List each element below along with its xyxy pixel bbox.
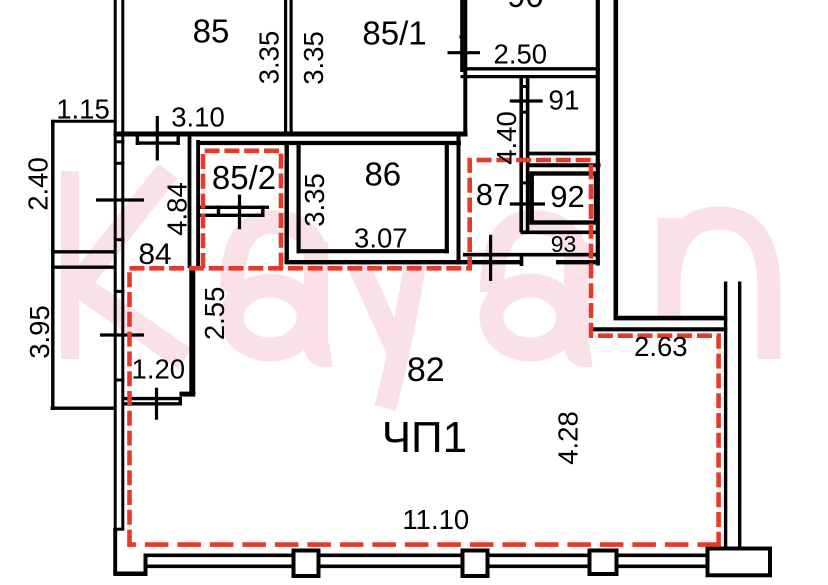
svg-text:84: 84 [138, 238, 171, 271]
svg-text:ЧП1: ЧП1 [382, 413, 467, 462]
svg-text:3.35: 3.35 [298, 31, 329, 85]
svg-text:3.10: 3.10 [171, 102, 225, 133]
svg-text:3.35: 3.35 [253, 31, 284, 85]
svg-text:2.40: 2.40 [22, 157, 53, 211]
svg-text:3.95: 3.95 [24, 305, 55, 359]
svg-text:3.35: 3.35 [299, 173, 330, 227]
svg-text:4.28: 4.28 [553, 411, 584, 465]
svg-text:2.55: 2.55 [199, 287, 230, 341]
svg-text:2.63: 2.63 [634, 331, 688, 362]
svg-text:4.84: 4.84 [162, 182, 193, 236]
svg-text:91: 91 [548, 85, 579, 116]
svg-text:85: 85 [193, 13, 230, 50]
svg-text:93: 93 [551, 231, 577, 257]
svg-text:2.50: 2.50 [494, 39, 548, 70]
svg-text:1.15: 1.15 [56, 93, 110, 124]
svg-text:1.20: 1.20 [132, 354, 186, 385]
svg-text:82: 82 [407, 351, 445, 389]
svg-text:92: 92 [550, 179, 584, 214]
svg-text:87: 87 [476, 177, 510, 212]
svg-text:86: 86 [364, 156, 401, 193]
svg-text:3.07: 3.07 [354, 223, 408, 254]
svg-text:4.40: 4.40 [491, 111, 522, 165]
svg-text:11.10: 11.10 [402, 504, 469, 535]
svg-text:85/1: 85/1 [362, 15, 426, 52]
svg-text:90: 90 [507, 0, 544, 14]
svg-text:85/2: 85/2 [212, 159, 276, 196]
